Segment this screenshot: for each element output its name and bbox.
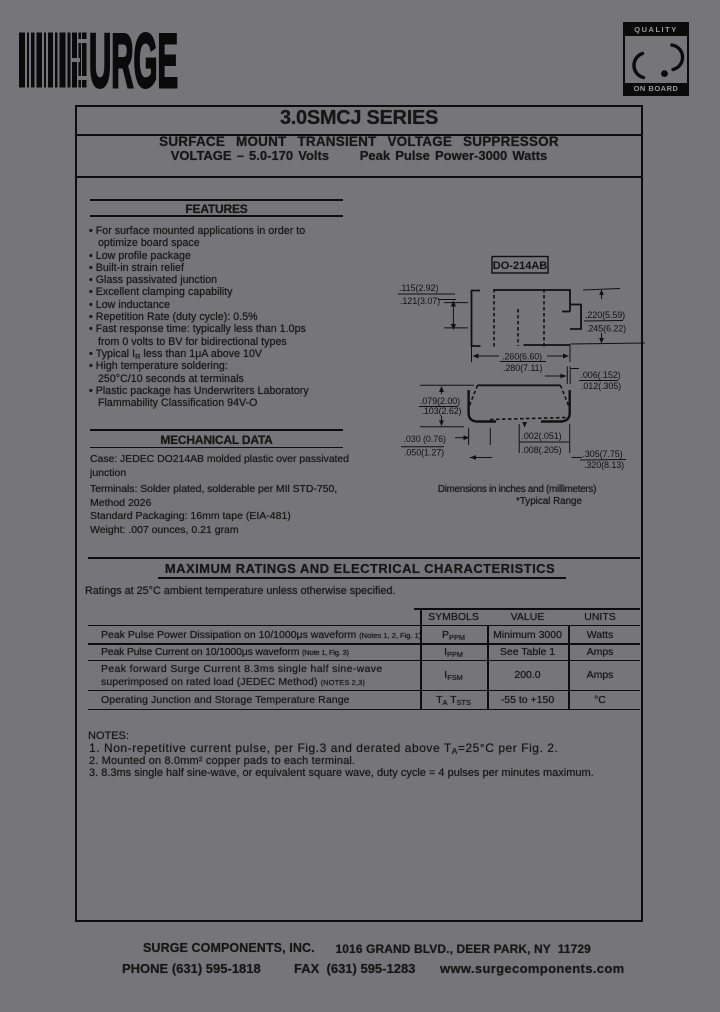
svg-text:.030 (0.76): .030 (0.76) (404, 434, 447, 444)
svg-text:.305(7.75): .305(7.75) (583, 449, 623, 459)
svg-text:.050(1.27): .050(1.27) (404, 448, 444, 458)
svg-text:.280(7.11): .280(7.11) (503, 363, 542, 373)
svg-text:.006(.152): .006(.152) (581, 370, 621, 380)
svg-text:.012(.305): .012(.305) (581, 381, 621, 391)
svg-text:.103(2.62): .103(2.62) (422, 406, 462, 416)
svg-text:.260(6.60): .260(6.60) (502, 352, 542, 362)
svg-text:.008(.205): .008(.205) (522, 445, 562, 455)
svg-text:DO-214AB: DO-214AB (493, 260, 547, 272)
svg-text:URGE: URGE (89, 31, 178, 89)
svg-text:.245(6.22): .245(6.22) (586, 324, 626, 334)
svg-text:.115(2.92): .115(2.92) (399, 283, 438, 293)
svg-text:.220(5.59): .220(5.59) (585, 310, 625, 320)
svg-text:.002(.051): .002(.051) (522, 431, 562, 441)
svg-text:.121(3.07): .121(3.07) (400, 296, 440, 306)
svg-text:.320(8.13): .320(8.13) (584, 460, 624, 470)
svg-text:.079(2.00): .079(2.00) (420, 396, 460, 406)
